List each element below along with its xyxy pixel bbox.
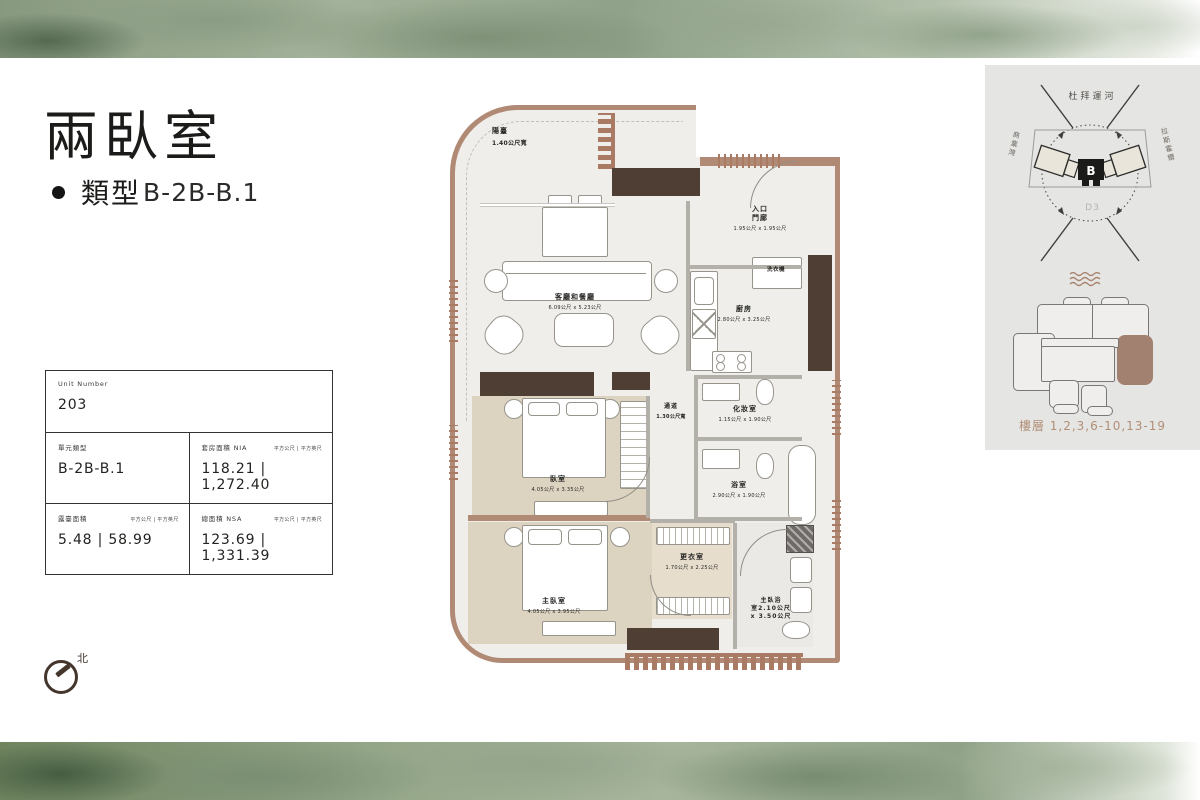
partition-wall	[650, 519, 735, 523]
powder-sink	[702, 383, 740, 401]
wall-block	[627, 628, 719, 650]
bedroom-divider-wall	[468, 515, 650, 521]
pillow	[528, 402, 560, 416]
room-name: 臥室	[498, 475, 618, 484]
floorplate-unit	[1041, 346, 1115, 382]
kitchen-sink	[694, 277, 714, 305]
shower	[786, 525, 814, 553]
room-name: 更衣室	[653, 553, 731, 562]
room-dims: 4.05公尺 x 3.95公尺	[494, 608, 614, 615]
room-label-bedroom: 臥室 4.05公尺 x 3.35公尺	[498, 475, 618, 493]
total-area-label: 總面積 NSA	[202, 513, 243, 523]
room-dims: 2.90公尺 x 1.90公尺	[702, 492, 776, 499]
bath-sink	[702, 449, 740, 469]
floorplan-brochure-page: { "header": { "title": "兩臥室", "type_labe…	[0, 0, 1200, 800]
unit-type-subtitle: 類型 B-2B-B.1	[52, 172, 259, 212]
toilet	[782, 621, 810, 639]
dining-table	[542, 207, 608, 257]
watercolor-band-top	[0, 0, 1200, 58]
bench	[542, 621, 616, 636]
vanity-sink	[790, 557, 812, 583]
room-name: 主臥浴 室2.10公尺 x 3.50公尺	[735, 597, 807, 620]
room-dims: 6.09公尺 x 5.23公尺	[510, 304, 640, 311]
terrace-area-cell: 露臺面積 平方公尺 | 平方英尺 5.48 | 58.99	[46, 504, 189, 574]
total-area-value: 123.69 | 1,331.39	[202, 532, 323, 564]
compass-circle-icon	[44, 660, 78, 694]
district-label: D3	[985, 203, 1200, 213]
canal-label: 杜拜運河	[985, 89, 1200, 102]
toilet	[756, 453, 774, 479]
partition-wall	[694, 375, 698, 520]
coffee-table	[554, 313, 614, 347]
table-row: 單元類型 B-2B-B.1 套房面積 NIA 平方公尺 | 平方英尺 118.2…	[46, 432, 332, 503]
suite-area-value: 118.21 | 1,272.40	[202, 461, 323, 493]
pillow	[566, 402, 598, 416]
room-name: 入口 門廊	[728, 205, 792, 223]
room-label-bath: 浴室 2.90公尺 x 1.90公尺	[702, 481, 776, 499]
burner-icon	[737, 362, 746, 371]
room-label-master-bedroom: 主臥室 4.05公尺 x 3.95公尺	[494, 597, 614, 615]
right-window-hatch	[832, 500, 841, 550]
dresser	[534, 501, 608, 516]
type-label: 類型	[81, 172, 141, 212]
room-dims: 4.05公尺 x 3.35公尺	[498, 486, 618, 493]
room-label-closet: 更衣室 1.70公尺 x 2.25公尺	[653, 553, 731, 571]
side-table	[484, 269, 508, 293]
terrace-area-label: 露臺面積	[58, 513, 87, 523]
plan-top-right-cutout	[696, 97, 846, 157]
room-label-master-bath: 主臥浴 室2.10公尺 x 3.50公尺	[735, 597, 807, 620]
left-window-hatch	[449, 280, 458, 342]
unit-number-value: 203	[58, 397, 322, 413]
floorplate-unit-highlighted	[1117, 335, 1153, 385]
right-window-hatch	[832, 380, 841, 435]
nightstand	[610, 527, 630, 547]
nightstand	[504, 527, 524, 547]
table-row: 露臺面積 平方公尺 | 平方英尺 5.48 | 58.99 總面積 NSA 平方…	[46, 503, 332, 574]
room-name: 浴室	[702, 481, 776, 490]
sofa-back-line	[506, 273, 646, 274]
room-label-balcony: 陽臺 1.40公尺寬	[492, 127, 572, 147]
floorplate-unit	[1053, 404, 1079, 414]
room-dims: 1.70公尺 x 2.25公尺	[653, 564, 731, 571]
suite-area-label: 套房面積 NIA	[202, 442, 248, 452]
watercolor-band-bottom	[0, 742, 1200, 800]
balcony-window-line	[480, 203, 615, 207]
closet-block	[808, 255, 832, 371]
balcony-rail-teeth	[598, 113, 615, 169]
suite-area-units: 平方公尺 | 平方英尺	[274, 445, 322, 452]
room-label-living-dining: 客廳和餐廳 6.09公尺 x 5.23公尺	[510, 293, 640, 311]
terrace-area-value: 5.48 | 58.99	[58, 532, 179, 548]
bathtub	[788, 445, 816, 525]
burner-icon	[716, 362, 725, 371]
room-label-kitchen: 廚房 2.80公尺 x 3.25公尺	[712, 305, 776, 323]
room-name: 陽臺	[492, 127, 572, 136]
unit-number-cell: Unit Number 203	[46, 371, 332, 432]
room-label-powder: 化妝室 1.15公尺 x 1.90公尺	[708, 405, 782, 423]
room-name: 客廳和餐廳	[510, 293, 640, 302]
floorplate-divider	[1092, 305, 1093, 339]
unit-type-value: B-2B-B.1	[58, 461, 179, 477]
side-table	[654, 269, 678, 293]
room-label-entry: 入口 門廊 1.95公尺 x 1.95公尺	[728, 205, 792, 232]
suite-area-cell: 套房面積 NIA 平方公尺 | 平方英尺 118.21 | 1,272.40	[189, 433, 333, 503]
floor-plan: 陽臺 1.40公尺寬 客廳和餐廳 6.09公尺 x 5.23公尺 入口 門廊 1…	[450, 105, 842, 667]
floorplate-unit	[1087, 406, 1113, 416]
partition-wall	[733, 523, 737, 649]
room-name: 廚房	[712, 305, 776, 314]
wall-block	[612, 168, 700, 196]
room-dims: 1.95公尺 x 1.95公尺	[728, 225, 792, 232]
type-value: B-2B-B.1	[143, 178, 259, 207]
page-title: 兩臥室	[44, 92, 224, 171]
toilet	[756, 379, 774, 405]
unit-type-cell: 單元類型 B-2B-B.1	[46, 433, 189, 503]
room-dims: 1.30公尺寬	[646, 413, 696, 420]
bottom-rail-teeth	[625, 653, 803, 670]
pillow	[568, 529, 602, 545]
key-plan-panel: B 杜拜運河 商業灣 拉斯霍爾 D3 樓層 1,2,3,6-10,13-19	[985, 65, 1200, 450]
room-dims: 1.40公尺寬	[492, 138, 572, 147]
north-compass: 北	[44, 650, 104, 696]
nightstand	[504, 399, 524, 419]
terrace-area-units: 平方公尺 | 平方英尺	[130, 516, 178, 523]
stove-hob	[712, 351, 752, 373]
unit-info-table: Unit Number 203 單元類型 B-2B-B.1 套房面積 NIA 平…	[45, 370, 333, 575]
room-name: 化妝室	[708, 405, 782, 414]
table-row: Unit Number 203	[46, 371, 332, 432]
unit-number-label: Unit Number	[58, 380, 108, 388]
room-name: 主臥室	[494, 597, 614, 606]
total-area-units: 平方公尺 | 平方英尺	[274, 516, 322, 523]
floorplate-diagram	[1013, 297, 1163, 413]
room-label-corridor: 通道 1.30公尺寬	[646, 403, 696, 420]
closet-rail	[656, 527, 730, 545]
wall-block	[480, 372, 594, 396]
north-label: 北	[77, 650, 88, 666]
wall-block	[612, 372, 650, 390]
room-name: 通道	[646, 403, 696, 411]
building-b-label: B	[1086, 164, 1095, 178]
floors-label: 樓層 1,2,3,6-10,13-19	[985, 417, 1200, 434]
pillow	[528, 529, 562, 545]
partition-wall	[698, 437, 802, 441]
bullet-icon	[52, 186, 65, 199]
total-area-cell: 總面積 NSA 平方公尺 | 平方英尺 123.69 | 1,331.39	[189, 504, 333, 574]
unit-type-label: 單元類型	[58, 442, 87, 452]
left-window-hatch	[449, 425, 458, 480]
partition-wall	[698, 375, 802, 379]
entry-window-hatch	[718, 154, 782, 168]
room-label-washer: 洗衣機	[752, 267, 800, 274]
partition-wall	[686, 201, 690, 371]
room-name: 洗衣機	[752, 267, 800, 274]
room-dims: 2.80公尺 x 3.25公尺	[712, 316, 776, 323]
site-diagram: B	[985, 73, 1200, 283]
room-dims: 1.15公尺 x 1.90公尺	[708, 416, 782, 423]
